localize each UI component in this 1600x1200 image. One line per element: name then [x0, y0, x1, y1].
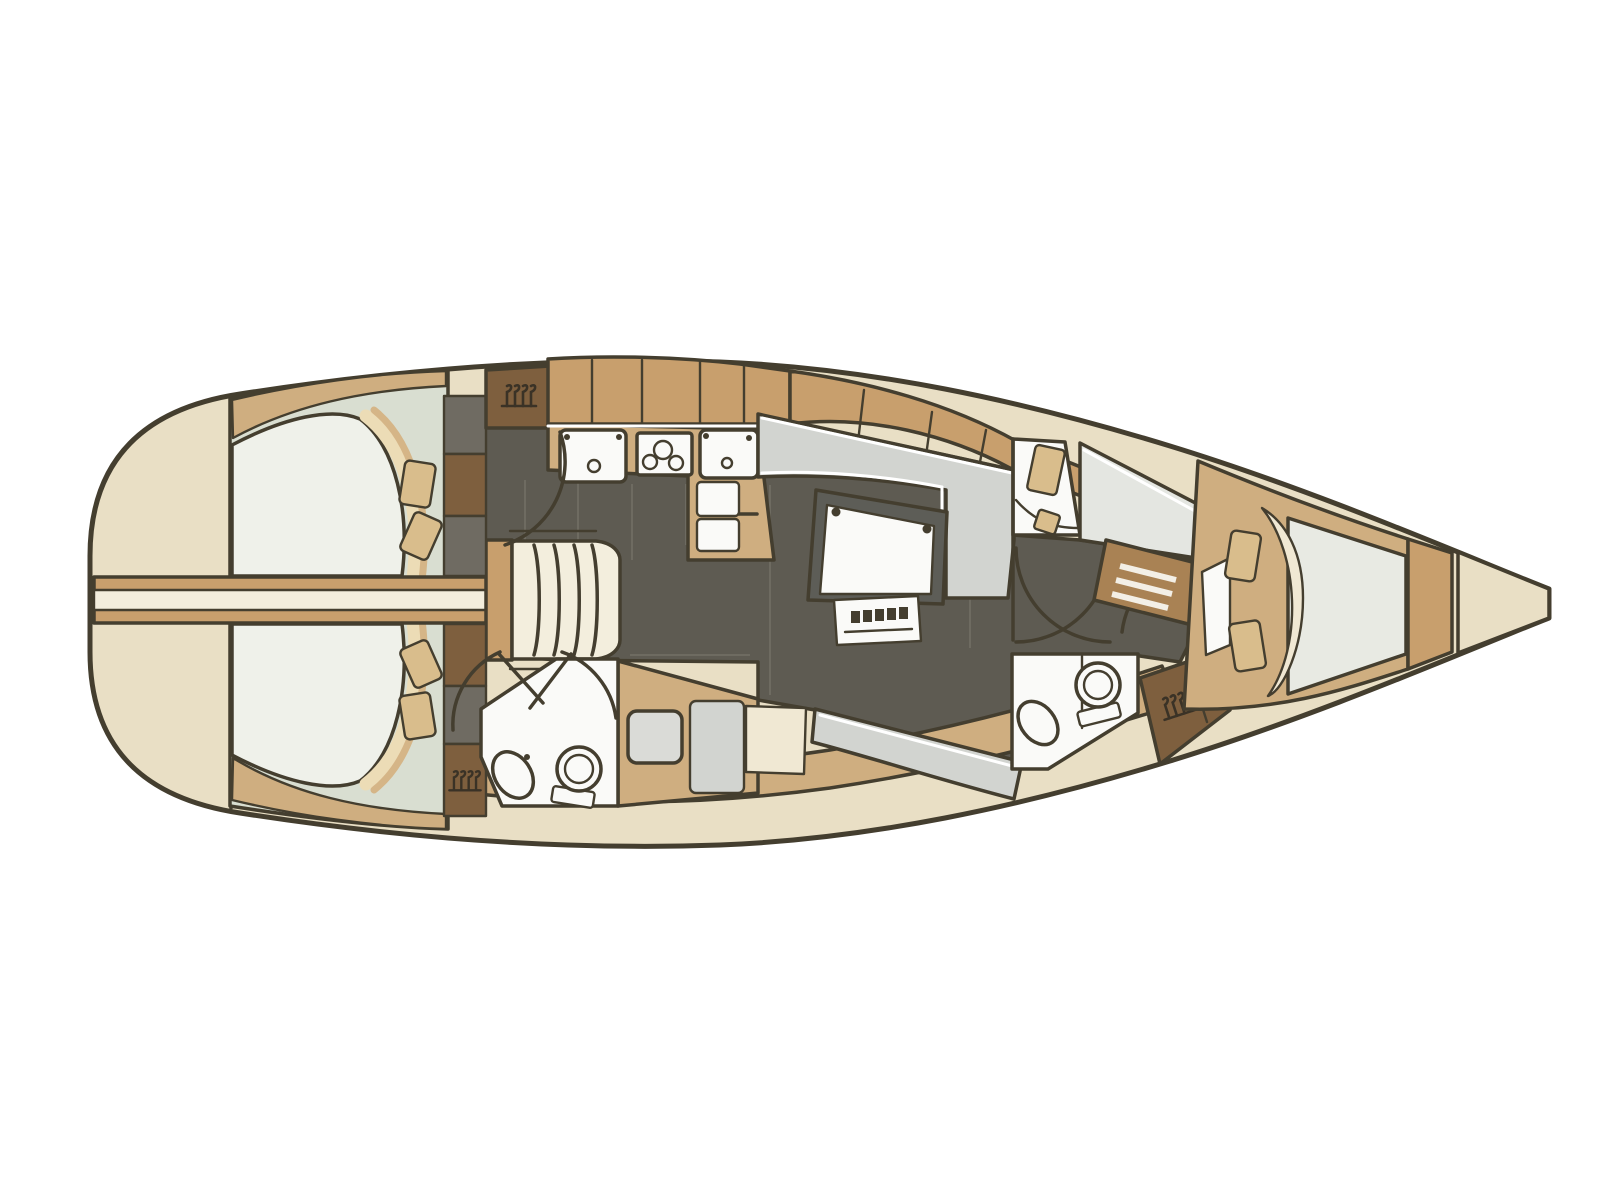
aft-berth-mattress-port — [232, 414, 404, 576]
center-beam-top — [94, 590, 545, 610]
fridge-lid-bottom — [697, 519, 739, 551]
aft-pillow-1 — [399, 460, 437, 508]
hanging-locker-galley — [486, 366, 550, 428]
stove-burner — [654, 441, 672, 459]
aft-berth-mattress-starboard — [232, 624, 404, 786]
side-shelf — [746, 706, 806, 774]
galley-sink-left — [560, 430, 626, 482]
toilet-icon — [1076, 663, 1120, 707]
rack-slot — [887, 608, 896, 620]
nav-seat — [690, 701, 744, 793]
yacht-floor-plan: Sailing yacht interior layout plan (top … — [0, 0, 1600, 1200]
locker-cell — [444, 454, 486, 516]
sink-fitting — [564, 434, 570, 440]
galley-upper-lockers — [548, 357, 790, 424]
sink-fitting — [616, 434, 622, 440]
sink-fitting — [746, 435, 752, 441]
locker-cell — [444, 396, 486, 454]
locker-cell — [444, 516, 486, 576]
fwd-pillow-2 — [1228, 620, 1266, 672]
sink-drain — [722, 458, 732, 468]
sink-fitting — [703, 433, 709, 439]
forward-cabin — [1184, 461, 1549, 709]
fridge-lid-top — [697, 482, 739, 516]
table-fitting — [923, 525, 932, 534]
sink-drain — [588, 460, 600, 472]
rack-slot — [875, 609, 884, 621]
stove-burner — [669, 456, 683, 470]
nav-desk — [628, 711, 682, 763]
fwd-pillow-1 — [1224, 530, 1261, 582]
bow-bulkhead-band — [1408, 539, 1452, 669]
locker-cell — [444, 624, 486, 686]
rack-slot — [899, 607, 908, 619]
rack-slot — [863, 610, 872, 622]
floor-plan-canvas: Sailing yacht interior layout plan (top … — [0, 0, 1600, 1200]
toilet-icon — [557, 747, 601, 791]
rack-slot — [851, 611, 860, 623]
faucet — [524, 754, 530, 760]
aft-pillow-3 — [399, 692, 437, 740]
companionway-stairs — [512, 541, 620, 659]
stove-burner — [643, 455, 657, 469]
stairs-side-block — [486, 540, 512, 660]
table-fitting — [832, 508, 841, 517]
